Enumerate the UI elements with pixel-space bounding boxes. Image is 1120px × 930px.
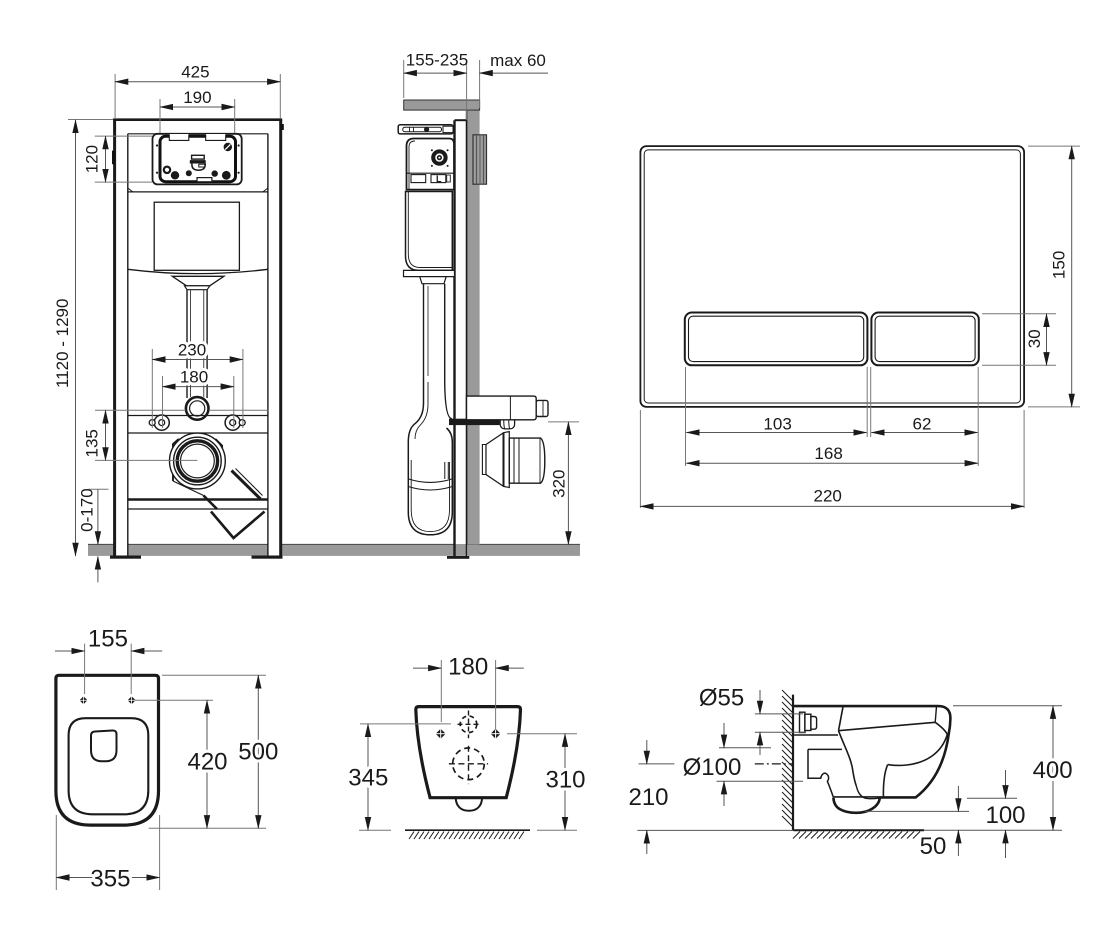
svg-text:103: 103 bbox=[763, 415, 791, 434]
svg-text:30: 30 bbox=[1025, 329, 1044, 348]
svg-text:420: 420 bbox=[187, 748, 227, 775]
svg-text:345: 345 bbox=[348, 765, 388, 792]
svg-text:320: 320 bbox=[550, 470, 569, 498]
svg-text:400: 400 bbox=[1033, 757, 1073, 784]
svg-text:425: 425 bbox=[181, 63, 209, 82]
svg-text:230: 230 bbox=[178, 340, 206, 359]
svg-text:190: 190 bbox=[183, 88, 211, 107]
svg-text:355: 355 bbox=[90, 865, 130, 892]
svg-text:155-235: 155-235 bbox=[406, 51, 468, 70]
svg-text:50: 50 bbox=[920, 833, 947, 860]
svg-text:150: 150 bbox=[1050, 251, 1069, 279]
svg-text:310: 310 bbox=[545, 767, 585, 794]
svg-text:L: L bbox=[436, 174, 442, 184]
svg-text:1120 - 1290: 1120 - 1290 bbox=[53, 299, 72, 388]
svg-text:180: 180 bbox=[180, 367, 208, 386]
svg-text:120: 120 bbox=[83, 145, 102, 173]
svg-text:168: 168 bbox=[814, 444, 842, 463]
svg-text:62: 62 bbox=[913, 415, 932, 434]
svg-text:220: 220 bbox=[814, 486, 842, 505]
svg-text:155: 155 bbox=[88, 625, 128, 652]
svg-text:Ø55: Ø55 bbox=[699, 685, 744, 712]
svg-text:100: 100 bbox=[985, 802, 1025, 829]
svg-text:0-170: 0-170 bbox=[78, 488, 97, 531]
svg-text:max 60: max 60 bbox=[490, 51, 546, 70]
svg-text:210: 210 bbox=[628, 784, 668, 811]
svg-text:180: 180 bbox=[448, 654, 488, 681]
svg-text:Ø100: Ø100 bbox=[683, 754, 742, 781]
svg-text:500: 500 bbox=[238, 739, 278, 766]
svg-text:135: 135 bbox=[83, 429, 102, 457]
